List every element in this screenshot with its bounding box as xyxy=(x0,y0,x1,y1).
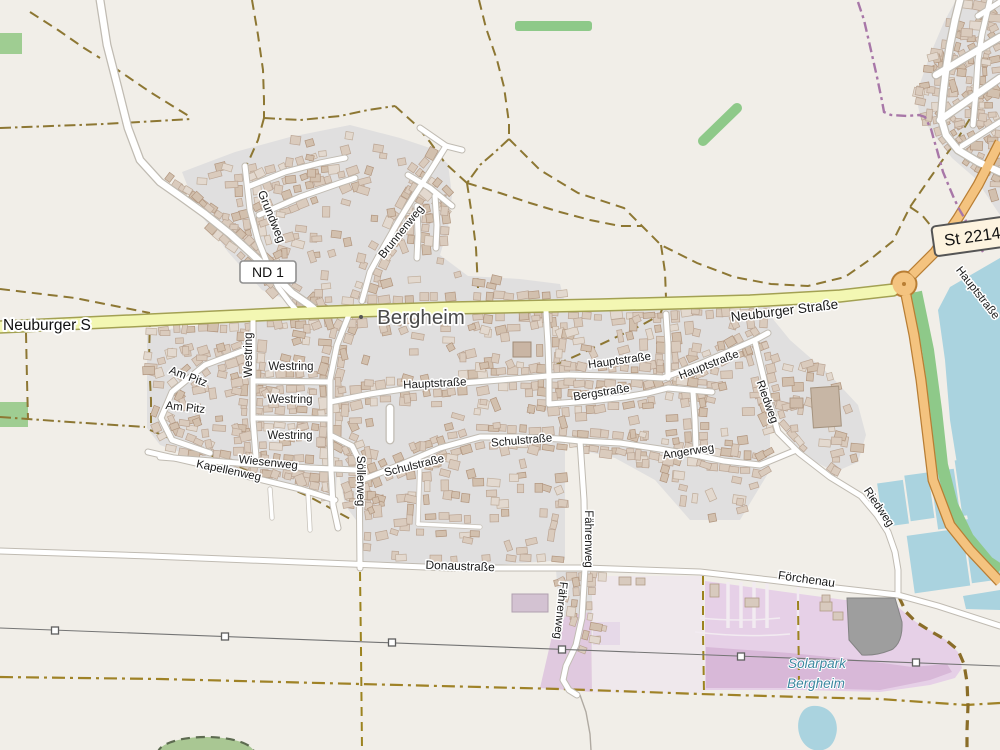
svg-text:Westring: Westring xyxy=(268,361,313,373)
svg-text:Westring: Westring xyxy=(267,430,312,442)
svg-text:Donaustraße: Donaustraße xyxy=(425,558,495,574)
svg-text:Solarpark: Solarpark xyxy=(788,656,847,671)
svg-text:Fährenweg: Fährenweg xyxy=(582,510,594,568)
svg-text:Bergheim: Bergheim xyxy=(787,676,845,691)
svg-text:Söllerweg: Söllerweg xyxy=(354,456,366,507)
svg-text:ND 1: ND 1 xyxy=(252,264,284,280)
svg-text:Bergheim: Bergheim xyxy=(377,306,465,329)
svg-text:Westring: Westring xyxy=(267,394,312,406)
svg-text:Neuburger S: Neuburger S xyxy=(3,317,91,334)
svg-text:Westring: Westring xyxy=(243,332,255,377)
